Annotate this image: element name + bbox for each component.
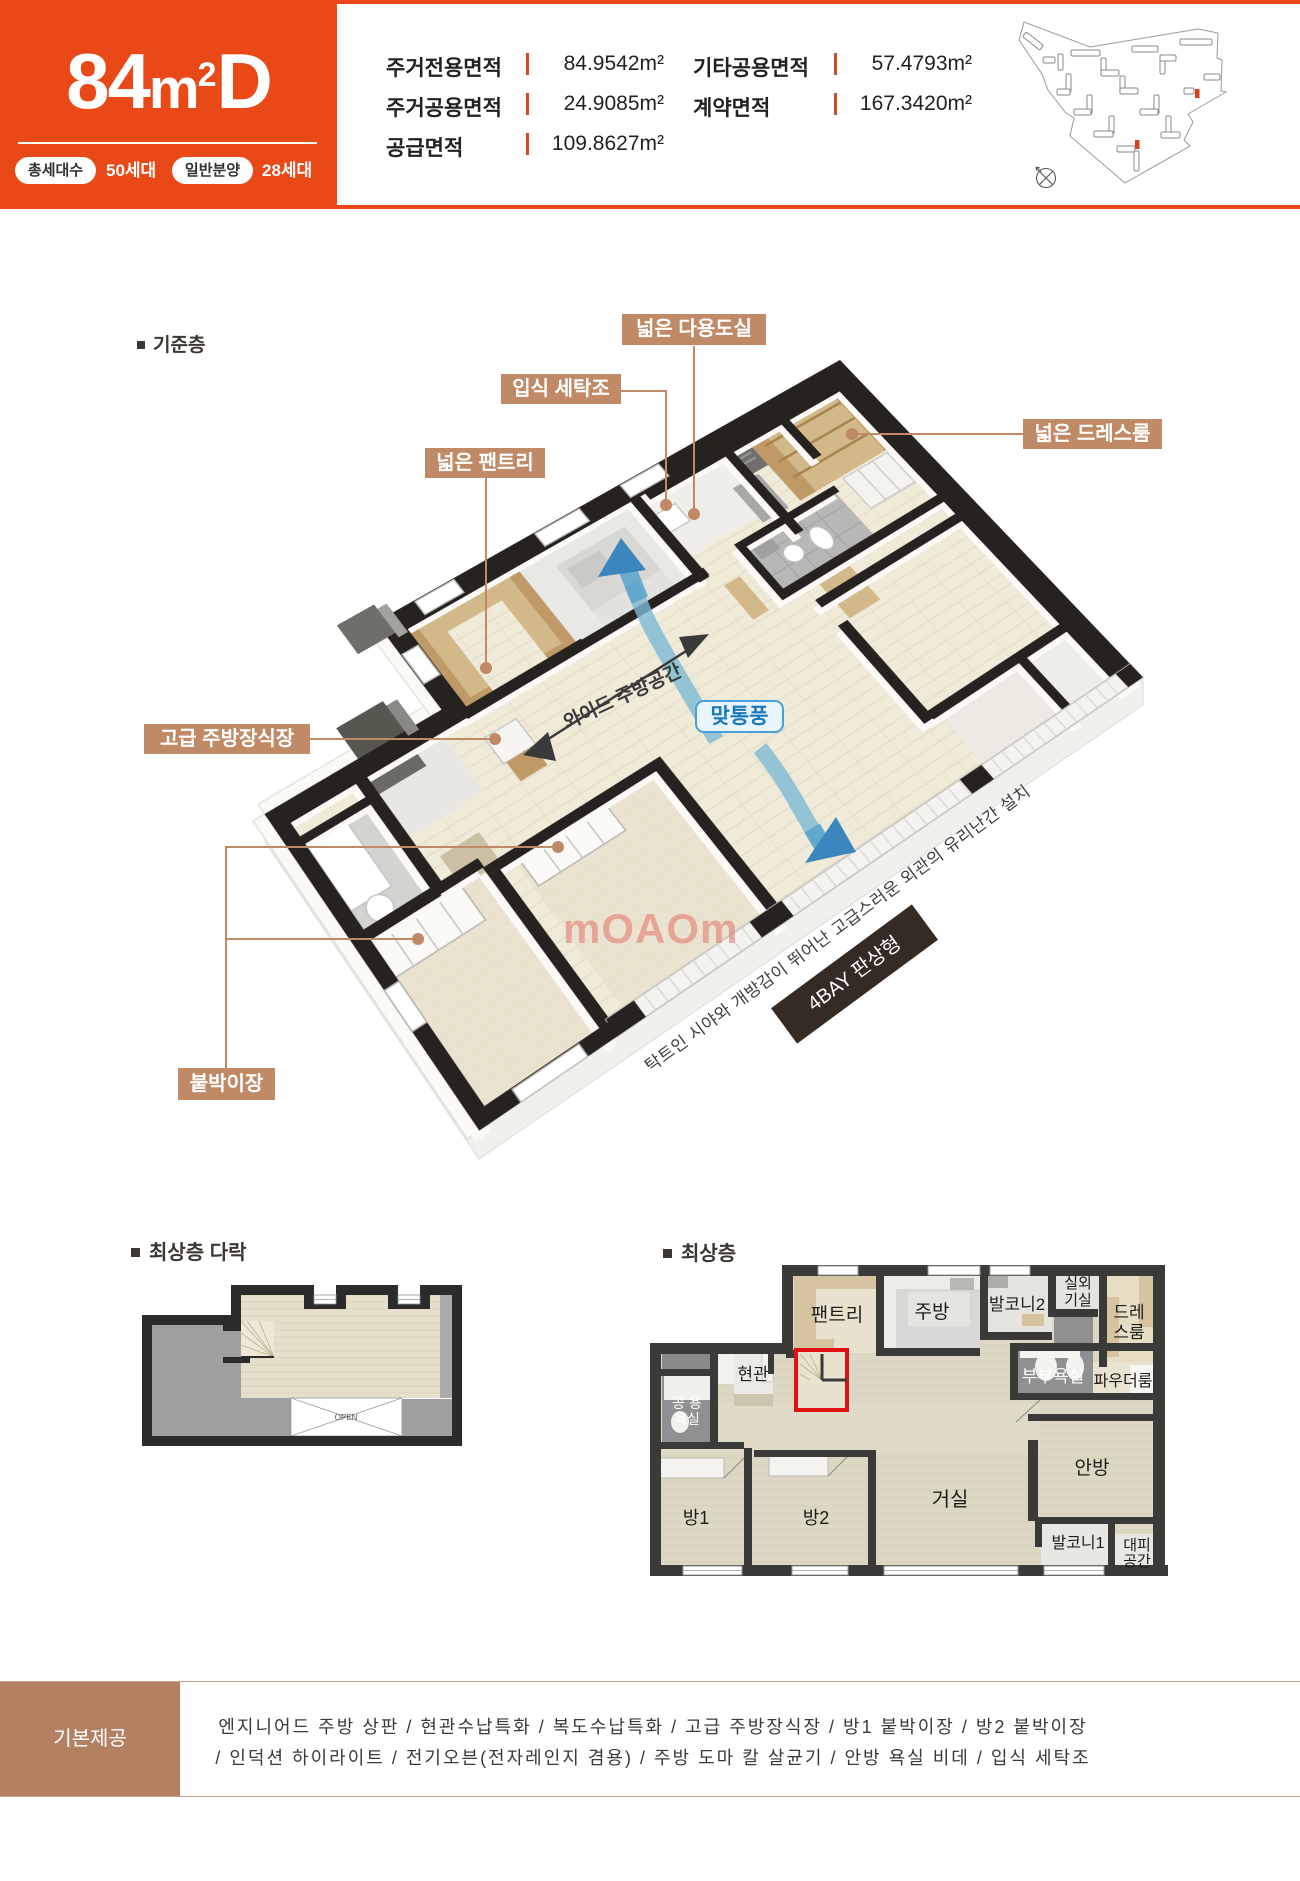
svg-text:발코니2: 발코니2 (989, 1295, 1045, 1314)
svg-text:주방: 주방 (915, 1301, 950, 1323)
svg-text:부부욕실: 부부욕실 (1022, 1367, 1085, 1386)
svg-text:현관: 현관 (737, 1365, 768, 1384)
svg-text:발코니1: 발코니1 (1051, 1534, 1104, 1552)
svg-text:OPEN: OPEN (335, 1413, 358, 1422)
svg-text:안방: 안방 (1075, 1457, 1110, 1479)
svg-text:욕실: 욕실 (674, 1411, 700, 1427)
svg-text:파우더룸: 파우더룸 (1094, 1372, 1153, 1390)
svg-text:공간: 공간 (1123, 1553, 1151, 1570)
svg-text:대피: 대피 (1123, 1537, 1151, 1554)
svg-text:실외: 실외 (1064, 1275, 1092, 1292)
svg-text:팬트리: 팬트리 (811, 1304, 863, 1326)
svg-text:공 용: 공 용 (672, 1395, 702, 1411)
svg-text:스룸: 스룸 (1113, 1323, 1144, 1342)
svg-text:방1: 방1 (683, 1508, 710, 1528)
svg-text:거실: 거실 (932, 1488, 969, 1511)
svg-text:드레: 드레 (1113, 1303, 1144, 1322)
svg-text:방2: 방2 (803, 1508, 830, 1528)
svg-text:기실: 기실 (1064, 1292, 1092, 1309)
